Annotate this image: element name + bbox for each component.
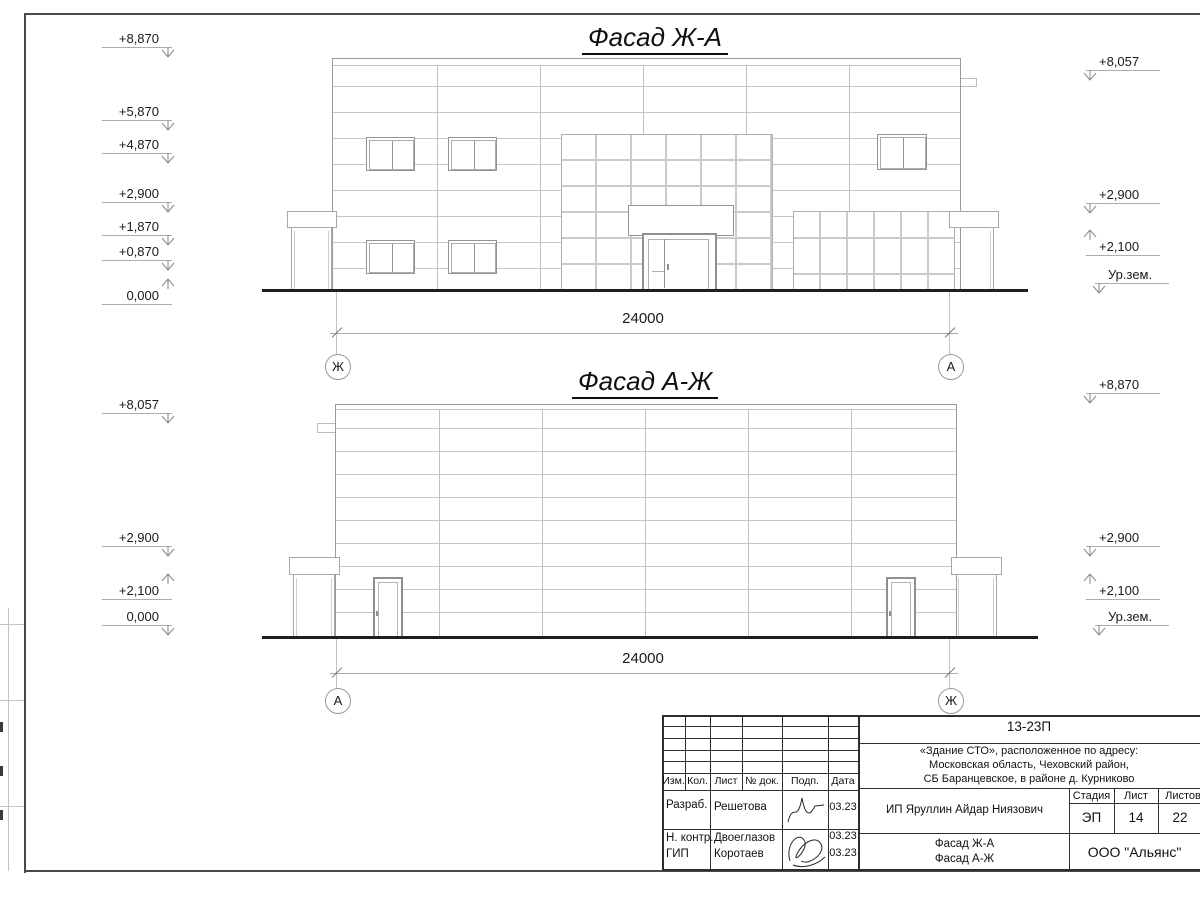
signature-icon [783, 827, 829, 869]
facade2-door [373, 577, 403, 636]
tb-address-line: Московская область, Чеховский район, [860, 759, 1198, 771]
axis-extension-line [949, 639, 950, 691]
facade2-right-annex-canopy [951, 557, 1002, 575]
facade2-siding-lines [336, 406, 956, 618]
elevation-value: +2,100 [1086, 583, 1160, 600]
left-margin-fragment [0, 810, 3, 820]
elevation-arrow-icon [1092, 625, 1106, 638]
tb-doc-code: 13-23П [860, 719, 1198, 734]
elevation-mark: +2,900 [102, 186, 172, 203]
facade1-title: Фасад Ж-А [495, 22, 815, 53]
door-sidelight-mullion [664, 239, 665, 288]
tb-sheet-label: Лист [1114, 790, 1158, 802]
elevation-value: 0,000 [102, 288, 172, 305]
elevation-value: +2,100 [1086, 239, 1160, 256]
frame-left-line [24, 13, 26, 873]
elevation-value: +0,870 [102, 244, 172, 261]
tb-sheets-value: 22 [1158, 810, 1200, 825]
elevation-value: +2,900 [1086, 187, 1160, 204]
elevation-mark: 0,000 [102, 609, 172, 626]
elevation-arrow-icon [161, 276, 175, 289]
tb-date: 03.23 [828, 847, 858, 859]
tb-date: 03.23 [828, 801, 858, 813]
elevation-value: +2,900 [1086, 530, 1160, 547]
tb-name: Двоеглазов [714, 832, 775, 844]
door-handle [376, 611, 378, 616]
facade1-panel-joint [437, 65, 438, 291]
facade2-left-annex-canopy [289, 557, 340, 575]
tb-role: Н. контр. [666, 832, 713, 844]
elevation-mark: 0,000 [102, 288, 172, 305]
elevation-value: 0,000 [102, 609, 172, 626]
elevation-value: +2,900 [102, 186, 172, 203]
tb-name: Решетова [714, 801, 767, 813]
elevation-arrow-icon [161, 202, 175, 215]
elevation-value: +1,870 [102, 219, 172, 236]
facade1-window [448, 137, 497, 171]
facade1-window [366, 137, 415, 171]
door-sidelight-bar [652, 271, 664, 272]
elevation-arrow-icon [161, 413, 175, 426]
tb-address-line: «Здание СТО», расположенное по адресу: [860, 745, 1198, 757]
door-handle [667, 264, 669, 270]
tb-address-line: СБ Баранцевское, в районе д. Курниково [860, 773, 1198, 785]
tb-stage-label: Стадия [1069, 790, 1114, 802]
elevation-arrow-icon [1083, 571, 1097, 584]
elevation-mark: +2,100 [1086, 583, 1160, 600]
left-margin-fragment [0, 806, 24, 807]
tb-name: Коротаев [714, 848, 764, 860]
facade2-door [886, 577, 916, 636]
facade1-elevation [332, 58, 961, 292]
elevation-mark: +2,900 [1086, 187, 1160, 204]
elevation-value: +2,100 [102, 583, 172, 600]
tb-client: ИП Яруллин Айдар Ниязович [860, 804, 1069, 816]
left-margin-fragment [0, 624, 24, 625]
elevation-mark: +0,870 [102, 244, 172, 261]
elevation-arrow-icon [1083, 227, 1097, 240]
elevation-mark: Ур.зем. [1095, 267, 1169, 284]
glazing-transom [794, 273, 954, 275]
elevation-mark: +4,870 [102, 137, 172, 154]
elevation-value: +8,870 [102, 31, 172, 48]
tb-col-header: Подп. [782, 775, 828, 787]
elevation-mark: +5,870 [102, 104, 172, 121]
elevation-mark: +2,100 [102, 583, 172, 600]
tb-role: Разраб. [666, 799, 707, 811]
elevation-arrow-icon [161, 47, 175, 60]
door-handle [889, 611, 891, 616]
facade1-window [877, 134, 927, 170]
elevation-mark: +8,057 [1086, 54, 1160, 71]
facade1-entrance-sign [628, 205, 734, 236]
tb-sheet-value: 14 [1114, 810, 1158, 825]
facade1-window [448, 240, 497, 274]
tb-company: ООО "Альянс" [1069, 844, 1200, 860]
elevation-arrow-icon [161, 571, 175, 584]
facade1-panel-joint [540, 65, 541, 291]
elevation-value: +8,057 [102, 397, 172, 414]
elevation-value: +5,870 [102, 104, 172, 121]
facade2-title: Фасад А-Ж [485, 366, 805, 397]
elevation-value: Ур.зем. [1095, 609, 1169, 626]
tb-role: ГИП [666, 848, 689, 860]
door-frame [648, 239, 709, 289]
elevation-mark: Ур.зем. [1095, 609, 1169, 626]
elevation-mark: +8,870 [102, 31, 172, 48]
elevation-value: +8,057 [1086, 54, 1160, 71]
facade2-ground-line [262, 636, 1038, 639]
elevation-mark: +2,900 [102, 530, 172, 547]
left-margin-fragment [8, 608, 9, 871]
elevation-value: +8,870 [1086, 377, 1160, 394]
tb-content-line: Фасад А-Ж [860, 853, 1069, 865]
elevation-mark: +8,057 [102, 397, 172, 414]
axis-extension-line [336, 639, 337, 691]
facade1-window [366, 240, 415, 274]
tb-date: 03.23 [828, 830, 858, 842]
elevation-arrow-icon [1083, 546, 1097, 559]
tb-col-header: Лист [710, 775, 742, 787]
facade1-entrance-door [642, 233, 717, 292]
elevation-value: +4,870 [102, 137, 172, 154]
elevation-value: +2,900 [102, 530, 172, 547]
dimension-value: 24000 [593, 650, 693, 667]
facade1-right-annex-canopy [949, 211, 999, 228]
axis-bubble: А [938, 354, 964, 380]
facade1-left-annex [291, 227, 332, 291]
elevation-value: Ур.зем. [1095, 267, 1169, 284]
axis-bubble: Ж [938, 688, 964, 714]
glazing-transom [794, 237, 954, 239]
tb-stage-value: ЭП [1069, 810, 1114, 825]
elevation-arrow-icon [1083, 70, 1097, 83]
elevation-mark: +1,870 [102, 219, 172, 236]
elevation-arrow-icon [1083, 393, 1097, 406]
axis-extension-line [949, 292, 950, 358]
elevation-arrow-icon [161, 625, 175, 638]
facade2-left-annex [293, 574, 335, 638]
frame-top-line [24, 13, 1200, 15]
axis-bubble: А [325, 688, 351, 714]
tb-col-header: Кол. [685, 775, 710, 787]
facade1-ribbon-glazing [793, 211, 955, 290]
facade2-panel-joint [748, 409, 749, 638]
elevation-arrow-icon [1092, 283, 1106, 296]
left-margin-fragment [0, 700, 24, 701]
tb-col-header: Дата [828, 775, 858, 787]
dimension-line [330, 333, 958, 334]
left-margin-fragment [0, 766, 3, 776]
tb-content-line: Фасад Ж-А [860, 838, 1069, 850]
facade1-left-annex-canopy [287, 211, 337, 228]
facade2-panel-joint [645, 409, 646, 638]
tb-col-header: № док. [742, 775, 782, 787]
axis-extension-line [336, 292, 337, 358]
facade2-panel-joint [851, 409, 852, 638]
elevation-arrow-icon [161, 120, 175, 133]
tb-sheets-label: Листов [1158, 790, 1200, 802]
elevation-arrow-icon [1083, 203, 1097, 216]
facade2-elevation [335, 404, 957, 639]
elevation-mark: +8,870 [1086, 377, 1160, 394]
elevation-mark: +2,100 [1086, 239, 1160, 256]
elevation-arrow-icon [161, 546, 175, 559]
elevation-arrow-icon [161, 260, 175, 273]
dimension-value: 24000 [593, 310, 693, 327]
facade1-ground-line [262, 289, 1028, 292]
dimension-line [330, 673, 958, 674]
tb-col-header: Изм. [662, 775, 685, 787]
left-margin-fragment [0, 722, 3, 732]
facade2-panel-joint [542, 409, 543, 638]
facade2-right-annex [955, 574, 997, 638]
drawing-sheet: { "sheet": { "facade1": { "title": "Фаса… [0, 0, 1200, 900]
elevation-arrow-icon [161, 153, 175, 166]
elevation-mark: +2,900 [1086, 530, 1160, 547]
signature-icon [783, 792, 827, 828]
facade2-panel-joint [439, 409, 440, 638]
axis-bubble: Ж [325, 354, 351, 380]
